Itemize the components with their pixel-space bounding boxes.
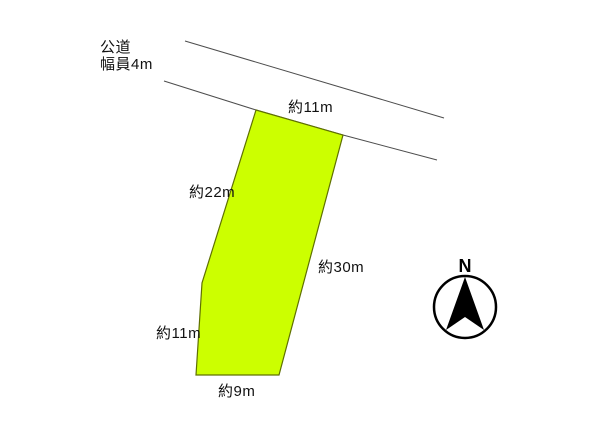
north-label: N (459, 256, 472, 276)
dimension-label-lower-left: 約11m (156, 325, 201, 342)
dimension-label-bottom: 約9m (218, 383, 255, 400)
dimension-label-top: 約11m (288, 99, 333, 116)
dimension-label-upper-left: 約22m (189, 184, 235, 201)
dimension-label-right: 約30m (318, 259, 364, 276)
road-name-label: 公道 (100, 39, 131, 56)
land-parcel (196, 110, 343, 375)
site-plan-canvas: 公道 幅員4m 約11m 約22m 約30m 約11m 約9m N (0, 0, 600, 425)
compass: N (434, 256, 496, 338)
road-width-label: 幅員4m (100, 56, 153, 73)
site-plan-page: 公道 幅員4m 約11m 約22m 約30m 約11m 約9m N (0, 0, 600, 425)
